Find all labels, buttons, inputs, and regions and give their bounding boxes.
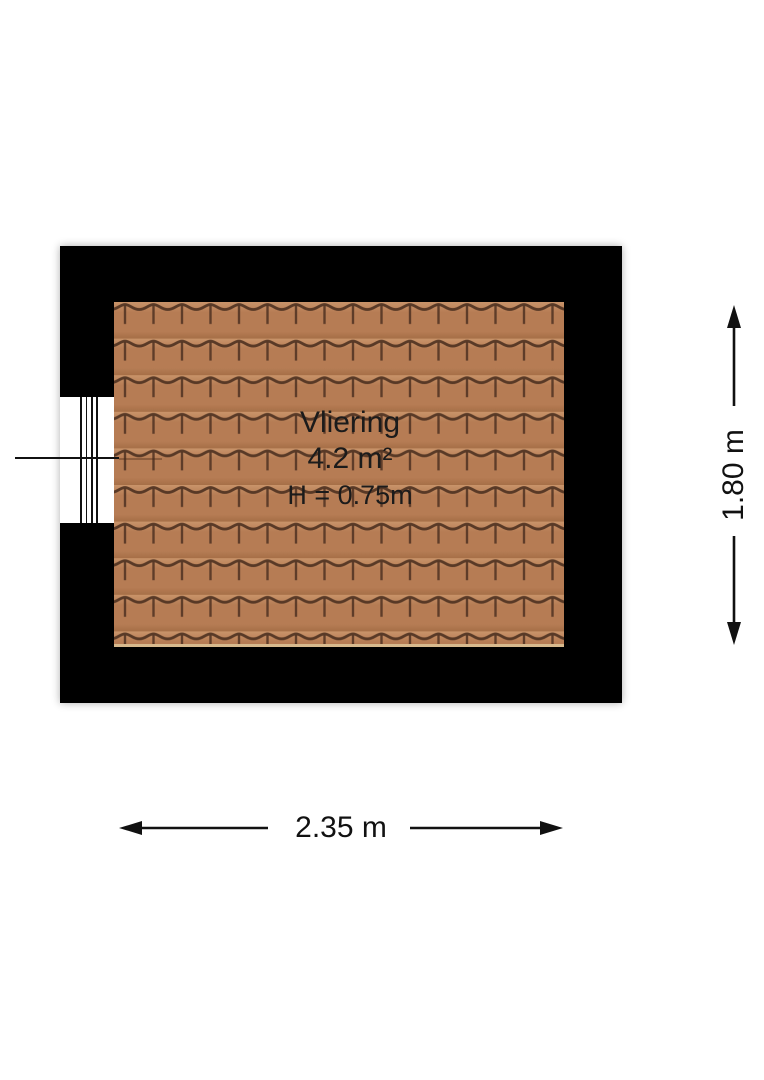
window-frame-line xyxy=(80,397,82,523)
room-height: H = 0.75m xyxy=(230,477,470,513)
window-frame-line xyxy=(86,397,88,523)
left-arrowhead-icon xyxy=(119,821,142,835)
height-dimension-label: 1.80 m xyxy=(717,429,751,521)
window-frame-line xyxy=(96,397,98,523)
room-label: Vliering 4.2 m² H = 0.75m xyxy=(230,405,470,513)
right-arrowhead-icon xyxy=(540,821,563,835)
width-dimension: 2.35 m xyxy=(115,806,567,850)
room-name: Vliering xyxy=(230,405,470,441)
up-arrowhead-icon xyxy=(727,305,741,328)
height-dimension: 1.80 m xyxy=(712,301,756,649)
section-line xyxy=(15,457,119,459)
tile-area-bottom-edge xyxy=(114,644,564,647)
room-area: 4.2 m² xyxy=(230,441,470,477)
width-dimension-label: 2.35 m xyxy=(295,811,387,845)
window-opening xyxy=(60,397,114,523)
floorplan-page: Vliering 4.2 m² H = 0.75m 2.35 m 1.80 m xyxy=(0,0,764,1080)
down-arrowhead-icon xyxy=(727,622,741,645)
window-frame-line xyxy=(91,397,93,523)
